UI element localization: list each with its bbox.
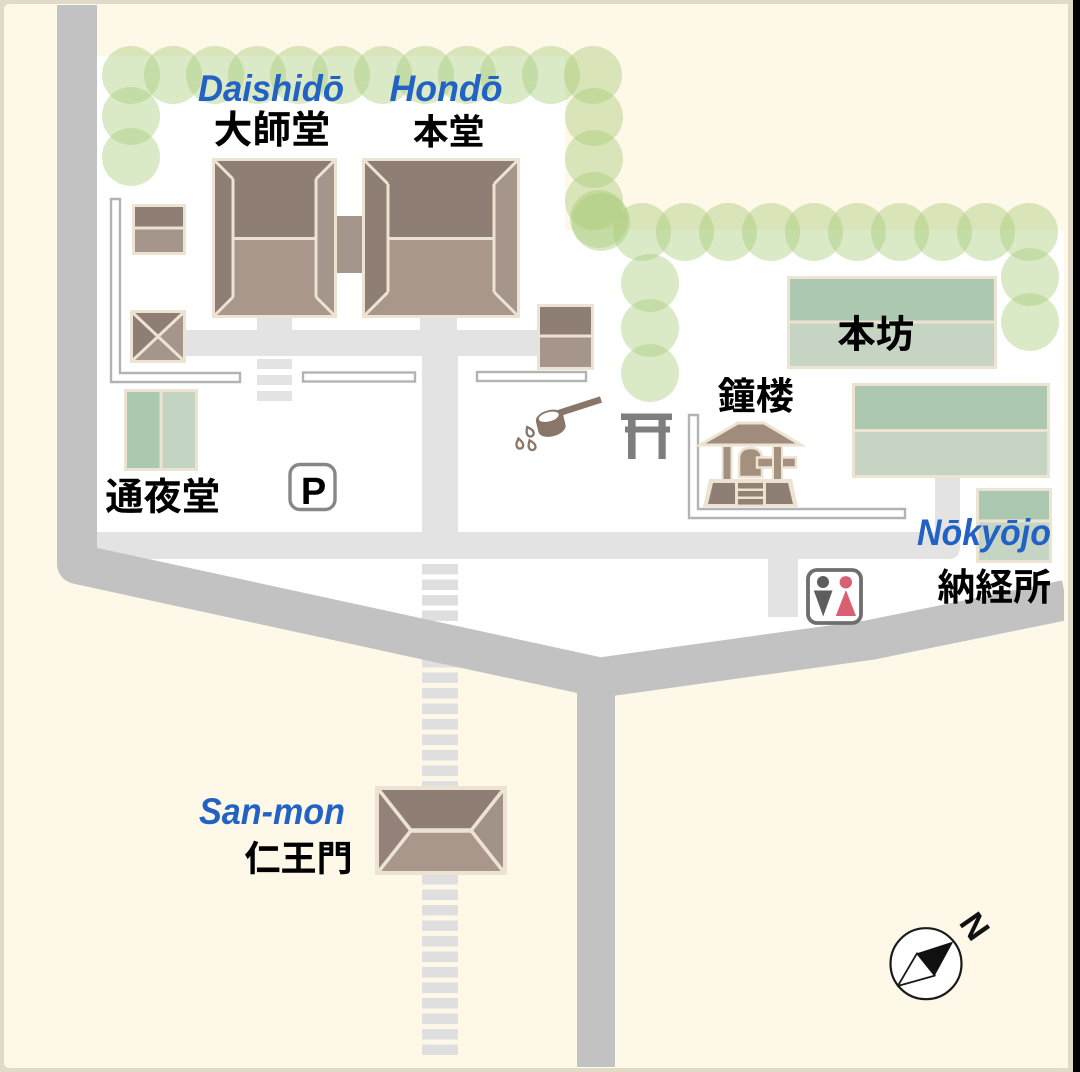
- svg-text:San-mon: San-mon: [199, 791, 345, 832]
- svg-text:Daishidō: Daishidō: [198, 68, 344, 109]
- svg-text:Hondō: Hondō: [390, 68, 503, 109]
- svg-text:P: P: [301, 471, 326, 513]
- svg-text:Nōkyōjo: Nōkyōjo: [917, 512, 1051, 553]
